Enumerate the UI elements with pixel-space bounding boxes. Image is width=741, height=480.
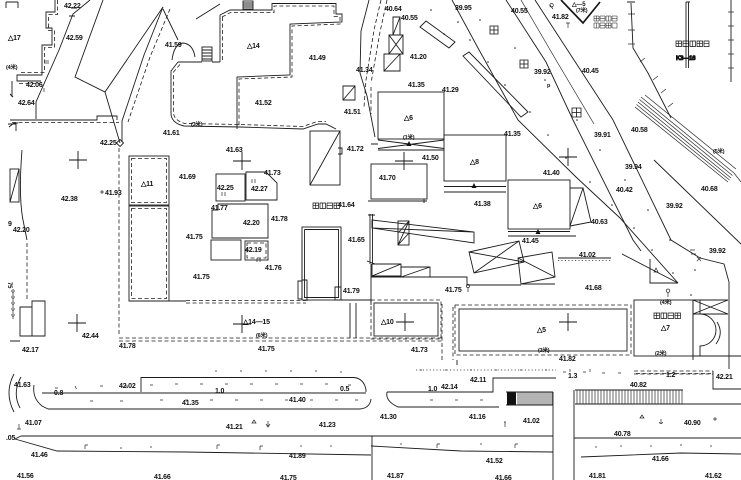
svg-text:9: 9 [8, 221, 12, 228]
svg-text:41.35: 41.35 [182, 400, 199, 407]
svg-text:40.90: 40.90 [684, 420, 701, 427]
svg-text:41.73: 41.73 [411, 347, 428, 354]
svg-text:.05: .05 [6, 435, 15, 442]
svg-text:△6: △6 [403, 115, 413, 122]
svg-text:41.66: 41.66 [154, 474, 171, 480]
svg-text:42.20: 42.20 [13, 227, 30, 234]
svg-text:41.02: 41.02 [523, 418, 540, 425]
svg-text:41.30: 41.30 [380, 414, 397, 421]
svg-text:41.73: 41.73 [264, 170, 281, 177]
svg-text:42.59: 42.59 [66, 35, 83, 42]
svg-text:41.78: 41.78 [119, 343, 136, 350]
svg-text:△14—15: △14—15 [242, 319, 270, 326]
svg-text:41.78: 41.78 [271, 216, 288, 223]
svg-text:42.44: 42.44 [82, 333, 99, 340]
svg-text:(6米): (6米) [256, 331, 268, 339]
svg-text:41.38: 41.38 [474, 201, 491, 208]
svg-text:42.25: 42.25 [100, 140, 117, 147]
svg-text:(4米): (4米) [6, 63, 18, 71]
svg-text:(1米): (1米) [403, 133, 415, 141]
svg-text:41.52: 41.52 [486, 458, 503, 465]
svg-text:(3米): (3米) [538, 346, 550, 354]
svg-text:42.27: 42.27 [251, 186, 268, 193]
svg-text:41.63: 41.63 [226, 147, 243, 154]
svg-text:41.89: 41.89 [289, 453, 306, 460]
svg-text:41.46: 41.46 [31, 452, 48, 459]
svg-text:41.07: 41.07 [25, 420, 42, 427]
svg-text:41.82: 41.82 [552, 14, 569, 21]
svg-text:40.55: 40.55 [401, 15, 418, 22]
svg-text:41.21: 41.21 [226, 424, 243, 431]
svg-text:41.45: 41.45 [522, 238, 539, 245]
svg-text:1.2: 1.2 [666, 372, 675, 379]
svg-text:41.75: 41.75 [186, 234, 203, 241]
svg-text:41.62: 41.62 [705, 473, 722, 480]
svg-text:42.17: 42.17 [22, 347, 39, 354]
svg-text:75: 75 [6, 282, 12, 289]
svg-text:42.19: 42.19 [245, 247, 262, 254]
svg-text:△11: △11 [140, 181, 153, 188]
svg-text:41.75: 41.75 [193, 274, 210, 281]
svg-text:42.38: 42.38 [61, 196, 78, 203]
svg-text:41.02: 41.02 [579, 252, 596, 259]
svg-text:41.87: 41.87 [387, 473, 404, 480]
svg-text:41.40: 41.40 [289, 397, 306, 404]
svg-text:(5米): (5米) [713, 147, 725, 155]
svg-text:41.61: 41.61 [163, 130, 180, 137]
svg-text:39.91: 39.91 [594, 132, 611, 139]
svg-text:41.66: 41.66 [652, 456, 669, 463]
svg-text:42.21: 42.21 [716, 374, 733, 381]
svg-text:41.75: 41.75 [258, 346, 275, 353]
svg-text:41.75: 41.75 [280, 475, 297, 480]
svg-text:41.35: 41.35 [408, 82, 425, 89]
svg-text:40.68: 40.68 [701, 186, 718, 193]
svg-text:42.25: 42.25 [217, 185, 234, 192]
svg-text:39.94: 39.94 [625, 164, 642, 171]
svg-text:△17: △17 [7, 35, 21, 42]
svg-text:△8: △8 [469, 159, 479, 166]
svg-text:(4米): (4米) [660, 298, 672, 306]
svg-text:(2米): (2米) [655, 349, 667, 357]
svg-text:41.56: 41.56 [17, 473, 34, 480]
svg-text:(7米): (7米) [576, 6, 588, 14]
svg-text:41.82: 41.82 [559, 356, 576, 363]
svg-text:40.55: 40.55 [511, 8, 528, 15]
svg-text:41.51: 41.51 [344, 109, 361, 116]
svg-text:41.64: 41.64 [338, 202, 355, 209]
svg-text:41.65: 41.65 [348, 237, 365, 244]
svg-text:39.95: 39.95 [455, 5, 472, 12]
svg-text:42.22: 42.22 [64, 3, 81, 10]
svg-text:1.0: 1.0 [215, 388, 224, 395]
svg-text:41.79: 41.79 [343, 288, 360, 295]
svg-text:41.63: 41.63 [14, 382, 31, 389]
svg-text:41.70: 41.70 [379, 175, 396, 182]
svg-text:△6: △6 [532, 203, 542, 210]
svg-text:41.76: 41.76 [265, 265, 282, 272]
svg-text:41.40: 41.40 [543, 170, 560, 177]
svg-text:39.92: 39.92 [666, 203, 683, 210]
svg-text:41.93: 41.93 [105, 190, 122, 197]
svg-text:41.35: 41.35 [504, 131, 521, 138]
svg-text:41.75: 41.75 [445, 287, 462, 294]
svg-text:(3米): (3米) [191, 120, 203, 128]
svg-text:39.92: 39.92 [709, 248, 726, 255]
svg-text:40.63: 40.63 [591, 219, 608, 226]
svg-text:41.50: 41.50 [422, 155, 439, 162]
svg-text:41.49: 41.49 [309, 55, 326, 62]
svg-text:41.16: 41.16 [469, 414, 486, 421]
svg-text:41.77: 41.77 [211, 205, 228, 212]
svg-text:41.72: 41.72 [347, 146, 364, 153]
svg-text:41.66: 41.66 [495, 475, 512, 480]
svg-text:42.02: 42.02 [119, 383, 136, 390]
svg-text:△14: △14 [246, 43, 260, 50]
svg-text:40.58: 40.58 [631, 127, 648, 134]
svg-text:41.68: 41.68 [585, 285, 602, 292]
svg-text:42.11: 42.11 [470, 377, 486, 384]
svg-text:△10: △10 [380, 319, 394, 326]
svg-text:0.5: 0.5 [340, 386, 349, 393]
svg-text:40.64: 40.64 [385, 6, 402, 13]
svg-text:40.42: 40.42 [616, 187, 633, 194]
svg-text:41.59: 41.59 [165, 42, 182, 49]
svg-text:K3—16: K3—16 [676, 56, 696, 62]
svg-text:△7: △7 [660, 325, 670, 332]
svg-text:40.82: 40.82 [630, 382, 647, 389]
svg-text:1.3: 1.3 [568, 373, 577, 380]
svg-text:△—5: △—5 [571, 1, 586, 8]
svg-text:42.06: 42.06 [26, 82, 43, 89]
svg-text:41.20: 41.20 [410, 54, 427, 61]
svg-text:41.52: 41.52 [255, 100, 272, 107]
svg-text:△5: △5 [536, 327, 546, 334]
svg-text:41.23: 41.23 [319, 422, 336, 429]
svg-text:40.78: 40.78 [614, 431, 631, 438]
svg-text:41.29: 41.29 [442, 87, 459, 94]
svg-text:40.45: 40.45 [582, 68, 599, 75]
svg-text:42.64: 42.64 [18, 100, 35, 107]
svg-text:42.14: 42.14 [441, 384, 458, 391]
svg-text:41.81: 41.81 [589, 473, 606, 480]
svg-text:41.69: 41.69 [179, 174, 196, 181]
svg-text:42.20: 42.20 [243, 220, 260, 227]
svg-text:0.8: 0.8 [54, 390, 63, 397]
svg-text:39.92: 39.92 [534, 69, 551, 76]
svg-text:41.34: 41.34 [356, 67, 373, 74]
svg-text:1.0: 1.0 [428, 386, 437, 393]
